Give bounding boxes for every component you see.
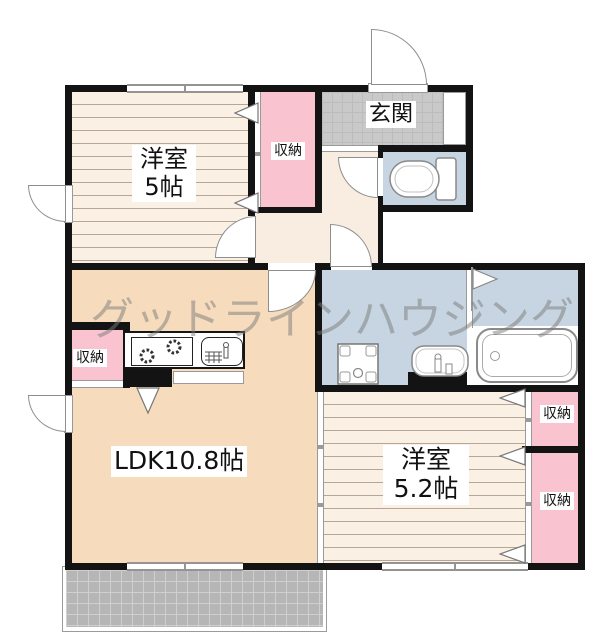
hallway-floor-b — [255, 213, 322, 263]
window-tick-bedroom — [454, 562, 456, 571]
closet-right-track-tick-1 — [525, 418, 532, 422]
closet-right-track-tick-2 — [525, 502, 532, 506]
casement-ldk-swing — [28, 395, 66, 432]
genkan-step — [322, 145, 378, 152]
partition-tick-2 — [317, 503, 324, 507]
closet-top-door-triangle-2 — [234, 192, 259, 214]
closet-ldk-door-triangle — [136, 387, 160, 415]
closet-top-door-triangle-1 — [234, 102, 259, 124]
floor-plan: グッドラインハウジング 洋室 5帖 玄関 収納 収納 LDK10.8帖 洋室 5… — [0, 0, 602, 640]
washing-machine-icon — [336, 342, 380, 386]
window-tick-top — [184, 84, 186, 93]
label-closet-right-bottom: 収納 — [540, 492, 574, 510]
closet-top-track-tick — [254, 152, 261, 156]
label-yoshitsu5: 洋室 5帖 — [132, 145, 196, 202]
wall-closet-top-bottom — [255, 207, 322, 213]
wall-genkan-left — [315, 85, 322, 213]
wall-mid-horizontal — [65, 263, 585, 270]
shoe-cabinet — [443, 92, 466, 145]
label-yoshitsu5-name: 洋室 — [135, 146, 193, 174]
label-closet-right-top: 収納 — [540, 405, 574, 423]
ldk-bedroom-partition — [317, 392, 324, 563]
label-yoshitsu5-size: 5帖 — [135, 174, 193, 202]
window-tick-ldk — [184, 562, 186, 571]
casement-yoshitsu5-swing — [28, 185, 66, 222]
washbasin-icon — [410, 344, 470, 380]
closet-right-door-triangle-2 — [499, 446, 526, 466]
kitchen-ledge — [173, 371, 244, 384]
label-ldk: LDK10.8帖 — [111, 446, 247, 477]
closet-right-door-triangle-3 — [499, 544, 526, 564]
wall-right — [578, 263, 585, 570]
toilet-icon — [386, 156, 466, 204]
kitchen-base-block — [125, 369, 172, 387]
ldk-door-gap — [268, 263, 315, 270]
wall-genkan-bottom — [378, 145, 466, 152]
wall-washroom-bottom — [315, 385, 585, 392]
label-yoshitsu52-name: 洋室 — [386, 446, 466, 475]
entry-door-swing — [371, 29, 427, 85]
toilet-door-gap — [378, 158, 383, 196]
wall-closet-right-divider — [522, 446, 585, 453]
bathtub-drain — [490, 351, 500, 361]
watermark-text: グッドラインハウジング — [90, 283, 574, 347]
label-genkan: 玄関 — [366, 101, 416, 128]
closet-right-door-triangle-1 — [499, 388, 526, 408]
label-yoshitsu52-size: 5.2帖 — [386, 475, 466, 504]
wall-toilet-bottom — [378, 205, 473, 212]
partition-tick-1 — [317, 445, 324, 449]
label-yoshitsu52: 洋室 5.2帖 — [383, 445, 469, 505]
label-closet-ldk: 収納 — [73, 349, 107, 367]
wall-genkan-right — [466, 85, 473, 212]
label-closet-top: 収納 — [271, 142, 305, 160]
closet-ldk-door-track — [72, 380, 123, 388]
balcony-floor — [66, 570, 323, 627]
